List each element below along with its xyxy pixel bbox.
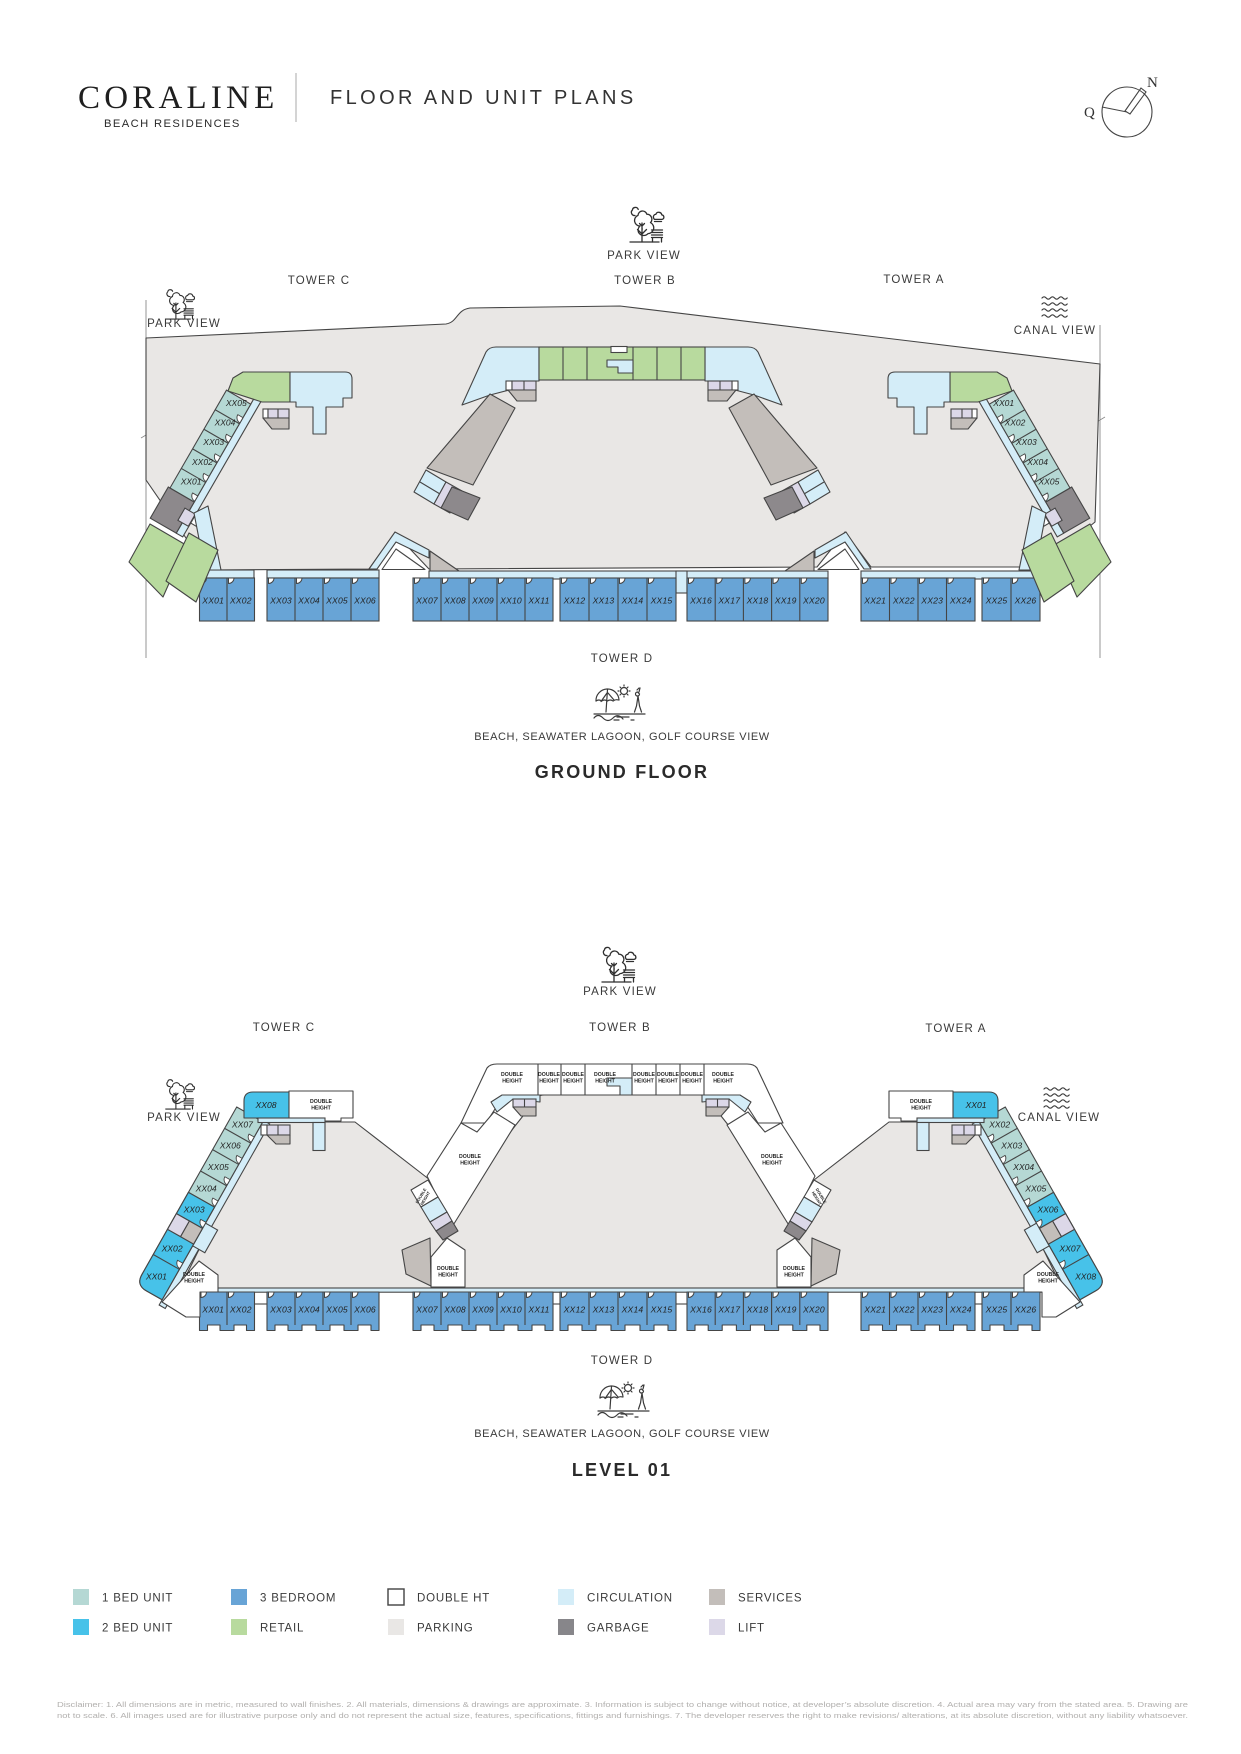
svg-text:DOUBLE: DOUBLE: [761, 1154, 783, 1160]
svg-text:HEIGHT: HEIGHT: [634, 1079, 654, 1085]
svg-text:TOWER A: TOWER A: [925, 1023, 986, 1035]
svg-text:XX25: XX25: [985, 596, 1008, 606]
svg-text:XX23: XX23: [920, 596, 943, 606]
svg-text:DOUBLE: DOUBLE: [1037, 1272, 1059, 1278]
svg-text:PARK VIEW: PARK VIEW: [607, 250, 681, 262]
svg-text:XX18: XX18: [746, 596, 769, 606]
svg-text:2 BED UNIT: 2 BED UNIT: [102, 1623, 173, 1635]
svg-text:XX17: XX17: [717, 596, 741, 606]
svg-text:BEACH RESIDENCES: BEACH RESIDENCES: [104, 118, 241, 130]
svg-text:XX03: XX03: [1000, 1141, 1022, 1151]
svg-text:DOUBLE: DOUBLE: [562, 1072, 584, 1078]
svg-text:XX02: XX02: [988, 1119, 1010, 1129]
svg-text:TOWER C: TOWER C: [288, 275, 351, 287]
svg-text:XX05: XX05: [207, 1162, 229, 1172]
svg-text:HEIGHT: HEIGHT: [713, 1079, 733, 1085]
svg-text:N: N: [1147, 75, 1158, 91]
svg-text:TOWER A: TOWER A: [883, 274, 944, 286]
svg-text:XX01: XX01: [180, 476, 202, 486]
svg-text:HEIGHT: HEIGHT: [784, 1273, 804, 1279]
svg-text:XX04: XX04: [297, 596, 320, 606]
svg-text:XX05: XX05: [1024, 1183, 1046, 1193]
svg-text:HEIGHT: HEIGHT: [595, 1079, 615, 1085]
svg-text:XX17: XX17: [717, 1305, 741, 1315]
svg-text:DOUBLE: DOUBLE: [712, 1072, 734, 1078]
svg-text:CANAL VIEW: CANAL VIEW: [1018, 1112, 1101, 1124]
svg-text:GARBAGE: GARBAGE: [587, 1623, 649, 1635]
svg-text:XX02: XX02: [1004, 418, 1026, 428]
svg-text:XX07: XX07: [415, 596, 439, 606]
svg-text:XX07: XX07: [231, 1119, 254, 1129]
svg-text:BEACH, SEAWATER LAGOON, GOLF C: BEACH, SEAWATER LAGOON, GOLF COURSE VIEW: [474, 1428, 770, 1440]
svg-text:XX19: XX19: [774, 1305, 797, 1315]
svg-text:XX16: XX16: [689, 1305, 712, 1315]
svg-text:XX09: XX09: [471, 596, 494, 606]
svg-text:DOUBLE: DOUBLE: [437, 1266, 459, 1272]
svg-text:XX11: XX11: [527, 596, 549, 606]
svg-text:XX03: XX03: [1015, 437, 1037, 447]
svg-text:3 BEDROOM: 3 BEDROOM: [260, 1593, 336, 1605]
svg-text:Disclaimer: 1. All dimensions: Disclaimer: 1. All dimensions are in met…: [57, 1700, 1188, 1709]
svg-text:LEVEL 01: LEVEL 01: [572, 1460, 672, 1480]
svg-text:XX06: XX06: [219, 1141, 241, 1151]
svg-text:XX06: XX06: [353, 1305, 376, 1315]
svg-text:HEIGHT: HEIGHT: [539, 1079, 559, 1085]
svg-text:XX01: XX01: [201, 596, 224, 606]
svg-text:PARKING: PARKING: [417, 1623, 474, 1635]
svg-text:XX12: XX12: [563, 596, 586, 606]
svg-text:XX02: XX02: [229, 1305, 252, 1315]
svg-text:XX22: XX22: [892, 1305, 915, 1315]
svg-text:XX10: XX10: [499, 596, 522, 606]
svg-text:HEIGHT: HEIGHT: [438, 1273, 458, 1279]
svg-text:GROUND FLOOR: GROUND FLOOR: [535, 762, 709, 782]
svg-text:XX01: XX01: [992, 398, 1014, 408]
svg-text:XX05: XX05: [1038, 476, 1060, 486]
svg-text:CANAL VIEW: CANAL VIEW: [1014, 325, 1097, 337]
svg-text:XX03: XX03: [269, 596, 292, 606]
svg-text:XX23: XX23: [920, 1305, 943, 1315]
svg-text:XX24: XX24: [949, 596, 972, 606]
svg-text:XX19: XX19: [774, 596, 797, 606]
svg-text:XX26: XX26: [1014, 596, 1037, 606]
svg-text:CIRCULATION: CIRCULATION: [587, 1593, 673, 1605]
svg-text:XX01: XX01: [145, 1271, 167, 1281]
svg-text:XX25: XX25: [985, 1305, 1008, 1315]
svg-text:XX13: XX13: [592, 596, 615, 606]
svg-text:XX05: XX05: [325, 1305, 348, 1315]
svg-text:SERVICES: SERVICES: [738, 1593, 802, 1605]
svg-text:DOUBLE: DOUBLE: [633, 1072, 655, 1078]
svg-text:XX04: XX04: [1026, 457, 1048, 467]
svg-text:HEIGHT: HEIGHT: [184, 1279, 204, 1285]
svg-text:CORALINE: CORALINE: [78, 80, 278, 116]
svg-text:BEACH, SEAWATER LAGOON, GOLF C: BEACH, SEAWATER LAGOON, GOLF COURSE VIEW: [474, 731, 770, 743]
svg-text:XX05: XX05: [225, 398, 247, 408]
svg-text:XX02: XX02: [229, 596, 252, 606]
svg-text:PARK VIEW: PARK VIEW: [147, 1112, 221, 1124]
svg-text:XX13: XX13: [592, 1305, 615, 1315]
svg-text:HEIGHT: HEIGHT: [911, 1106, 931, 1112]
svg-text:DOUBLE: DOUBLE: [681, 1072, 703, 1078]
svg-text:HEIGHT: HEIGHT: [460, 1161, 480, 1167]
svg-text:PARK VIEW: PARK VIEW: [583, 986, 657, 998]
svg-text:TOWER C: TOWER C: [253, 1022, 316, 1034]
svg-text:DOUBLE: DOUBLE: [183, 1272, 205, 1278]
svg-text:XX14: XX14: [621, 1305, 644, 1315]
svg-text:HEIGHT: HEIGHT: [658, 1079, 678, 1085]
svg-text:XX12: XX12: [563, 1305, 586, 1315]
svg-text:DOUBLE: DOUBLE: [657, 1072, 679, 1078]
svg-text:XX09: XX09: [471, 1305, 494, 1315]
svg-text:XX08: XX08: [443, 1305, 466, 1315]
svg-text:PARK VIEW: PARK VIEW: [147, 318, 221, 330]
svg-text:DOUBLE: DOUBLE: [310, 1099, 332, 1105]
svg-text:XX08: XX08: [443, 596, 466, 606]
svg-text:XX03: XX03: [183, 1205, 205, 1215]
svg-text:DOUBLE HT: DOUBLE HT: [417, 1593, 490, 1605]
svg-text:FLOOR AND UNIT PLANS: FLOOR AND UNIT PLANS: [330, 87, 637, 109]
svg-text:TOWER D: TOWER D: [591, 1355, 654, 1367]
svg-text:not to scale. 6. All images us: not to scale. 6. All images used are for…: [57, 1711, 1188, 1720]
svg-text:1 BED UNIT: 1 BED UNIT: [102, 1593, 173, 1605]
svg-text:XX03: XX03: [202, 437, 224, 447]
svg-text:DOUBLE: DOUBLE: [459, 1154, 481, 1160]
svg-text:HEIGHT: HEIGHT: [311, 1106, 331, 1112]
svg-text:HEIGHT: HEIGHT: [762, 1161, 782, 1167]
svg-text:DOUBLE: DOUBLE: [594, 1072, 616, 1078]
svg-text:Q: Q: [1084, 105, 1095, 121]
svg-text:XX02: XX02: [191, 457, 213, 467]
svg-text:XX06: XX06: [353, 596, 376, 606]
svg-text:TOWER D: TOWER D: [591, 653, 654, 665]
svg-text:XX05: XX05: [325, 596, 348, 606]
svg-text:XX22: XX22: [892, 596, 915, 606]
svg-text:DOUBLE: DOUBLE: [538, 1072, 560, 1078]
svg-text:XX04: XX04: [1012, 1162, 1034, 1172]
svg-text:DOUBLE: DOUBLE: [910, 1099, 932, 1105]
svg-text:XX21: XX21: [863, 596, 886, 606]
svg-text:XX01: XX01: [201, 1305, 224, 1315]
svg-text:RETAIL: RETAIL: [260, 1623, 304, 1635]
svg-text:XX20: XX20: [802, 1305, 825, 1315]
svg-text:XX15: XX15: [650, 1305, 673, 1315]
svg-text:DOUBLE: DOUBLE: [783, 1266, 805, 1272]
svg-text:HEIGHT: HEIGHT: [502, 1079, 522, 1085]
svg-text:TOWER B: TOWER B: [614, 275, 676, 287]
svg-text:XX03: XX03: [269, 1305, 292, 1315]
svg-text:DOUBLE: DOUBLE: [501, 1072, 523, 1078]
svg-text:XX07: XX07: [415, 1305, 439, 1315]
svg-text:HEIGHT: HEIGHT: [682, 1079, 702, 1085]
svg-text:XX21: XX21: [863, 1305, 886, 1315]
svg-text:XX04: XX04: [297, 1305, 320, 1315]
svg-text:XX07: XX07: [1058, 1244, 1081, 1254]
svg-text:XX18: XX18: [746, 1305, 769, 1315]
svg-text:XX08: XX08: [254, 1100, 276, 1110]
svg-text:XX04: XX04: [195, 1183, 217, 1193]
svg-text:LIFT: LIFT: [738, 1623, 765, 1635]
svg-text:XX20: XX20: [802, 596, 825, 606]
svg-text:XX14: XX14: [621, 596, 644, 606]
svg-text:XX08: XX08: [1074, 1271, 1096, 1281]
svg-text:XX10: XX10: [499, 1305, 522, 1315]
svg-text:XX15: XX15: [650, 596, 673, 606]
svg-text:XX04: XX04: [214, 418, 236, 428]
svg-text:TOWER B: TOWER B: [589, 1022, 651, 1034]
svg-text:XX24: XX24: [949, 1305, 972, 1315]
svg-text:XX16: XX16: [689, 596, 712, 606]
svg-text:XX06: XX06: [1036, 1205, 1058, 1215]
svg-text:XX01: XX01: [964, 1100, 986, 1110]
svg-text:HEIGHT: HEIGHT: [563, 1079, 583, 1085]
svg-text:XX02: XX02: [161, 1244, 183, 1254]
svg-text:XX26: XX26: [1014, 1305, 1037, 1315]
svg-text:XX11: XX11: [527, 1305, 549, 1315]
svg-text:HEIGHT: HEIGHT: [1038, 1279, 1058, 1285]
